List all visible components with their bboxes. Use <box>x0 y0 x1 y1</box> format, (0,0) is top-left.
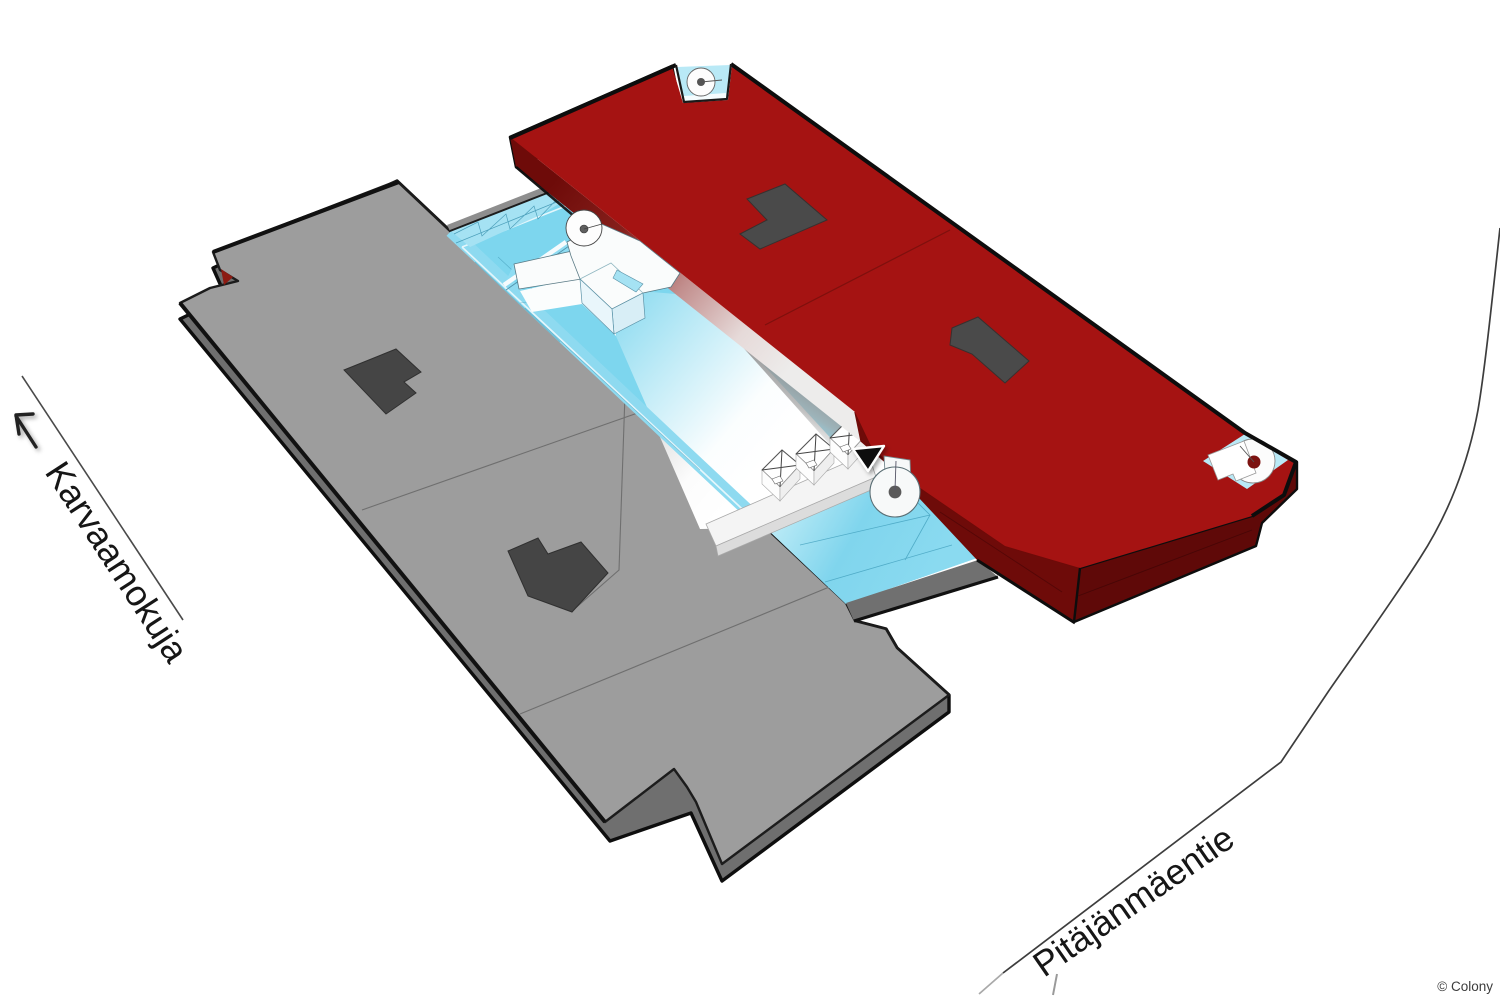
svg-text:© Colony: © Colony <box>1437 979 1493 994</box>
